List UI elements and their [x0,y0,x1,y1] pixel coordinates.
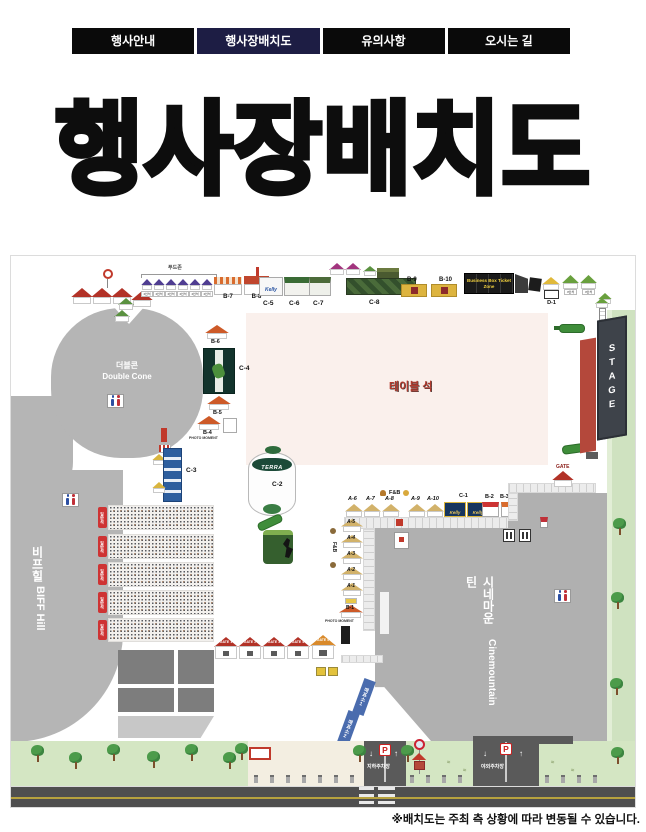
plaza-kiosk-mark [399,537,404,542]
gate1-label: GATE 1 [214,640,238,644]
building-block [178,650,214,684]
booth-b2-label: B-2 [485,495,494,501]
booth-a4-label: A-4 [347,536,355,541]
page: 행사안내 행사장배치도 유의사항 오시는 길 행사장배치도 비프힐 BIFF H… [0,0,646,832]
gate3-label: GATE 3 [262,640,286,644]
booth-d1-chip: D-1 [544,290,559,299]
tree-icon [401,745,414,762]
biff-hill-ko: 비프힐 [29,546,46,582]
b6-tent [205,325,229,339]
shelter-icon [249,747,271,760]
ticket-office-1-label: 매표소1 [357,686,371,708]
cinemountain-ko: 시네마운틴 [463,576,497,635]
tab-notice[interactable]: 유의사항 [323,28,445,54]
tab-bar: 행사안내 행사장배치도 유의사항 오시는 길 [72,28,570,54]
booth-c6 [284,277,310,296]
purple-tent [177,279,189,290]
double-cone-en: Double Cone [85,371,169,382]
seat-bank: 일반석 [108,534,214,559]
bollard [318,775,322,783]
bollard [254,775,258,783]
red-marker [396,519,403,526]
tree-icon [31,745,44,762]
road-center-line [11,797,636,799]
gate-side-label: GATE [556,465,570,470]
purple-tent [141,279,153,290]
kelly-logo: Kelly [265,287,277,293]
a-tent [382,504,400,517]
a-tent [426,504,444,517]
booth-a8-label: A-8 [385,497,394,503]
seat-zone-tag: 일반석 [98,620,107,640]
bollard [270,775,274,783]
terra-logo: TERRA [261,465,282,471]
aed-sign [540,517,548,528]
gate-tent-5: GATE 5 [310,635,336,659]
tree-icon [185,744,198,761]
arrow-up: ↑ [519,750,523,758]
crosswalk [378,787,395,808]
booth-c6-label: C-6 [289,301,299,308]
tab-directions[interactable]: 오시는 길 [448,28,570,54]
seat-bank: 일반석 [108,505,214,530]
booth-b10-logo [441,287,448,294]
kelly-logo: Kelly [450,510,461,515]
d1-tent [542,277,560,290]
bollard [458,775,462,783]
booth-c2-label: C-2 [272,482,282,489]
green-tent [114,310,130,322]
magenta-tent [329,263,345,275]
stage-base [586,452,598,459]
tree-icon [107,744,120,761]
outdoor-parking-label: 야외주차장 [481,765,504,770]
footer-note: ※배치도는 주최 측 상황에 따라 변동될 수 있습니다. [392,811,640,827]
restroom-icon [554,589,571,603]
seat-chip: 4인석 [201,291,213,297]
booth-a7-label: A-7 [366,497,375,503]
underground-parking-label: 지하주차장 [367,765,390,770]
booth-c3-label: C-3 [186,468,196,475]
parking-sign: P [379,744,391,756]
cinemountain-label: 시네마운틴 Cinemountain [463,576,497,706]
bollard [286,775,290,783]
photo-moment-label: PHOTO MOMENT [189,437,218,441]
booth-c5: Kelly [259,277,283,296]
booth-c4-label: C-4 [239,366,249,373]
seat-chip: 4인석 [153,291,165,297]
kelly-booth: Kelly [444,502,466,517]
bollard [545,775,549,783]
booth-c5-label: C-5 [263,301,273,308]
stage-label: STAGE [607,342,618,414]
booth-c7-label: C-7 [313,301,323,308]
photo-moment-label: PHOTO MOMENT [325,620,354,624]
green-tent [580,275,597,289]
a-tent [408,504,426,517]
booth-d1-label: D-1 [547,300,556,306]
purple-tent [165,279,177,290]
tab-venue-map[interactable]: 행사장배치도 [197,28,319,54]
tree-icon [147,751,160,768]
sign-pole [107,279,108,288]
zone-bracket [141,274,217,278]
bollard [410,775,414,783]
food-icon [330,528,336,534]
arrow-up: ↑ [394,750,398,758]
seat-chip: 4인석 [177,291,189,297]
green-tent [363,266,377,276]
gate-tent-2: GATE 2 [238,637,262,659]
tree-icon [611,747,624,764]
grass-tuft: ≈ [447,760,450,766]
seat-chip: 4인석 [141,291,153,297]
crosswalk [359,787,374,808]
booth-b7 [214,277,242,284]
a-tent [363,504,381,517]
flag-icon [256,267,259,276]
booth-c8-label: C-8 [369,300,379,307]
building-entrance [380,592,389,634]
building-apron [118,716,214,738]
red-sign [161,428,167,442]
business-box-ticket-zone: Business Box Ticket Zone [464,273,514,294]
ticket-box [328,667,338,676]
bollard [350,775,354,783]
yellow-chip [345,598,357,604]
double-cone-label: 더블콘 Double Cone [85,360,169,382]
booth-a3-label: A-3 [347,552,355,557]
bollard [561,775,565,783]
a-tent [345,504,363,517]
tree-icon [353,745,366,762]
seat-bank: 일반석 [108,590,214,615]
b5-tent [207,396,231,410]
food-icon [330,562,336,568]
building-block [118,688,174,712]
double-cone-building [51,308,203,458]
bollard [302,775,306,783]
no-parking-icon [414,739,425,750]
gate-side-tent [552,471,574,487]
red-tent [91,288,113,304]
booth-b7-label: B-7 [223,294,233,300]
parking-sign: P [500,743,512,755]
seat-bank: 일반석 [108,618,214,642]
business-box-wedge [515,274,528,293]
red-tent [71,288,93,304]
venue-map: 비프힐 BIFF Hill 더블콘 Double Cone 일반석 일반석 일반… [10,255,636,808]
building-block [178,688,214,712]
tree-icon [613,518,626,535]
elevator-icon-bars [506,532,512,539]
tree-icon [235,743,248,760]
bollard [426,775,430,783]
booth-b6-label: B-6 [211,340,220,346]
table-seat-label: 테이블 석 [389,382,433,393]
booth-a5-label: A-5 [347,520,355,525]
arrow-down: ↓ [483,750,487,758]
bollard [334,775,338,783]
gate-tent-3: GATE 3 [262,637,286,659]
seat-zone-tag: 일반석 [98,536,107,557]
biff-hill-en: BIFF Hill [29,586,46,631]
walkway [363,529,375,631]
grass-tuft: ≈ [551,760,554,766]
seat-zone-tag: 일반석 [98,564,107,585]
biff-hill-label: 비프힐 BIFF Hill [29,546,46,676]
double-cone-ko: 더블콘 [85,360,169,371]
booth-a9-label: A-9 [411,497,420,503]
purple-tent [153,279,165,290]
seat-chip: 4인석 [189,291,201,297]
booth-c1-label: C-1 [459,494,468,500]
gate-tent-4: GATE 4 [286,637,310,659]
seat-bank: 일반석 [108,562,214,587]
restroom-icon [107,394,124,408]
magenta-tent [345,263,361,275]
purple-tent [189,279,201,290]
cinemountain-en: Cinemountain [463,639,497,706]
booth-c3 [163,448,182,502]
terra-base-logo [263,504,281,514]
grass-tuft: ≈ [463,768,466,774]
tree-icon [69,752,82,769]
round-sign-icon [103,269,113,279]
booth-c7 [309,277,331,296]
beer-bottle-neck [554,326,560,330]
ticket-office-banner-1[interactable]: 매표소1 [352,678,376,716]
gate4-label: GATE 4 [286,640,310,644]
booth-a6-label: A-6 [348,497,357,503]
b4-tent [197,416,221,430]
plaza-upper [508,493,607,533]
bollard [577,775,581,783]
booth-b1-label: B-1 [346,606,354,611]
bollard [593,775,597,783]
red-booth [482,502,499,517]
yellow-tent [152,482,166,493]
seat-chip: 4인석 [582,289,595,295]
terra-roof-logo [265,446,281,454]
elevator-icon-bars [522,532,528,539]
business-box-label: Business Box Ticket Zone [465,278,513,290]
food-cart-body [414,761,425,770]
booth-b10-label: B-10 [439,277,452,283]
seat-zone-tag: 일반석 [98,592,107,613]
walkway [508,493,518,521]
gate5-label: GATE 5 [310,638,336,642]
green-tent [118,298,134,310]
seat-chip: 4인석 [564,289,577,295]
gate2-label: GATE 2 [238,640,262,644]
building-block [118,650,174,684]
seat-chip: 4인석 [165,291,177,297]
tree-icon [611,592,624,609]
arrow-down: ↓ [369,750,373,758]
green-tent [562,275,579,289]
booth-b9-label: B-9 [407,277,417,283]
zone-bracket-label: 푸드존 [166,266,184,271]
fnb-side-label: F&B [331,542,336,552]
white-booth [223,418,237,433]
booth-b9-logo [411,287,418,294]
black-sign [341,626,350,644]
purple-tent [201,279,213,290]
stage-panel: STAGE [597,315,627,440]
tree-icon [610,678,623,695]
black-kiosk [528,277,542,292]
gate-tent-1: GATE 1 [214,637,238,659]
stage-red-wall [580,338,596,454]
ticket-office-2-label: 매표소2 [341,718,355,740]
booth-a10-label: A-10 [427,497,439,503]
page-title: 행사장배치도 [0,93,646,209]
food-icon [403,490,409,496]
booth-a1-label: A-1 [347,584,355,589]
tower-cap-tent [595,298,609,308]
seat-zone-tag: 일반석 [98,507,107,528]
beer-bottle-icon [559,324,585,333]
booth-b7-front: B-7 [214,284,242,295]
bollard [442,775,446,783]
ticket-box [316,667,326,676]
terra-band: TERRA [252,458,292,471]
grass-tuft: ≈ [571,768,574,774]
booth-a2-label: A-2 [347,568,355,573]
tab-event-info[interactable]: 행사안내 [72,28,194,54]
walkway [341,655,383,663]
restroom-icon [62,493,79,507]
